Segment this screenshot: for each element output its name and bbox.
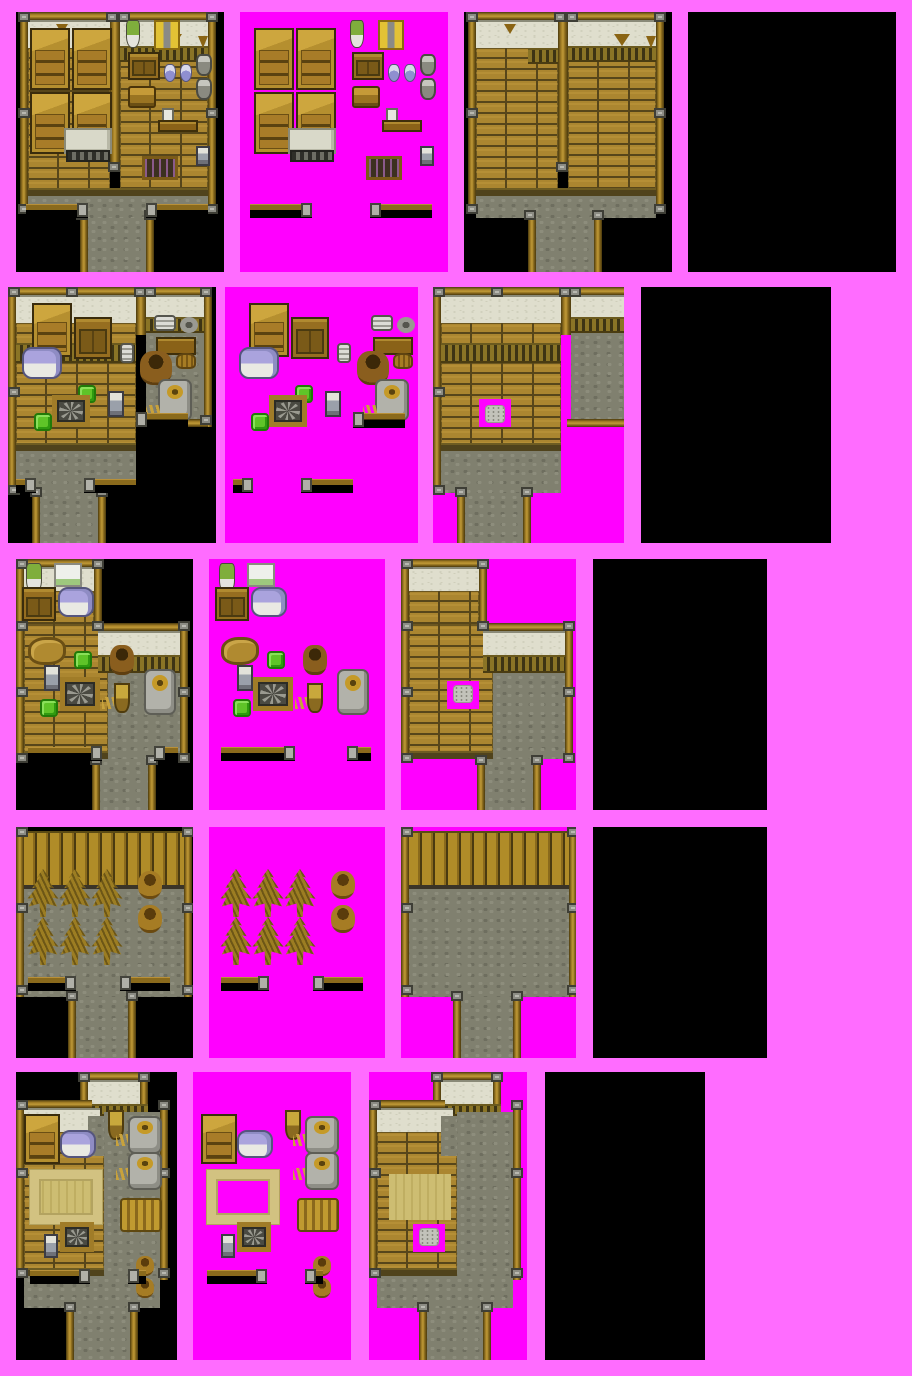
dresser (72, 28, 112, 90)
cauldron (303, 645, 327, 675)
ledge (301, 479, 353, 493)
chest (128, 86, 156, 108)
dresser (201, 1114, 237, 1164)
cap (567, 827, 576, 837)
exit-path (40, 493, 98, 543)
counter-rail (290, 150, 334, 162)
cushion (40, 699, 58, 717)
urn (196, 78, 212, 100)
cap (16, 1100, 28, 1110)
ledge (370, 204, 432, 218)
stove (337, 669, 369, 715)
wash-basin (239, 347, 279, 379)
cream-wall-left (441, 295, 561, 323)
cap (401, 903, 413, 913)
map-kitchen-interior-composite (8, 287, 216, 543)
cap (16, 827, 28, 837)
wooden-table (28, 637, 66, 665)
cap (433, 485, 445, 495)
cabinet (352, 52, 384, 80)
map-general-store-interior-composite (16, 12, 224, 272)
cap (417, 1302, 429, 1312)
hay-sticks (102, 697, 114, 709)
wall-base (16, 443, 136, 451)
ledge (120, 977, 170, 991)
cap (466, 204, 478, 214)
towel-rack (54, 563, 82, 587)
cap (8, 287, 20, 297)
alcove-cream-wall (441, 1080, 493, 1106)
cap (491, 287, 503, 297)
dead-tree (251, 917, 285, 965)
cap (106, 12, 118, 22)
cabinet (291, 317, 329, 359)
hay-sticks (293, 1168, 305, 1180)
cap (477, 621, 489, 631)
dead-tree (283, 917, 317, 965)
cap (182, 985, 193, 995)
cap (401, 621, 413, 631)
towel-rack (247, 563, 275, 587)
cap (16, 1268, 28, 1278)
cap (511, 1168, 523, 1178)
potion-bottle (404, 64, 416, 82)
wall-base (441, 443, 561, 451)
hay-sticks (116, 1168, 128, 1180)
cap (451, 991, 463, 1001)
cushion (34, 413, 52, 431)
palisade-wall (409, 831, 569, 889)
alcove-cream-wall (88, 1080, 140, 1106)
path-post (146, 212, 154, 272)
stone-floor (476, 196, 656, 218)
hanging-garment (378, 20, 404, 50)
candle-stand (307, 683, 323, 713)
stone-floor-right (571, 333, 624, 421)
basket (393, 353, 413, 369)
cap (433, 287, 445, 297)
wash-basin (22, 347, 62, 379)
cap (128, 1302, 140, 1312)
cap (466, 108, 478, 118)
flower-vase (126, 20, 140, 48)
stripe-band-right (483, 655, 569, 673)
hay-sticks (293, 1134, 305, 1146)
cushion (267, 651, 285, 669)
cap (401, 827, 413, 837)
cap (16, 985, 28, 995)
hearth (52, 395, 90, 427)
ledge (146, 204, 208, 218)
right-frame (94, 623, 188, 631)
ledge (221, 977, 269, 991)
cap (92, 559, 104, 569)
left-post (401, 559, 409, 761)
path-post (513, 995, 521, 1058)
ash-patch (485, 405, 505, 423)
cap (566, 12, 578, 22)
cap (16, 753, 28, 763)
hay-sticks (295, 697, 307, 709)
path-post (98, 489, 106, 543)
pot-lid (397, 317, 415, 333)
wash-basin (251, 587, 287, 617)
map-storehouse-with-dead-trees-objects-layer (209, 827, 385, 1058)
cushion (74, 651, 92, 669)
ledge (16, 479, 36, 493)
cap (477, 559, 489, 569)
cap (567, 985, 576, 995)
dead-tree (219, 917, 253, 965)
alcove-frame (435, 1072, 499, 1080)
hearth (269, 395, 307, 427)
desk (382, 120, 422, 132)
cap (16, 903, 28, 913)
right-room-edge (567, 419, 624, 427)
cap (521, 487, 533, 497)
desk (158, 120, 198, 132)
potion-bottle (164, 64, 176, 82)
urn (196, 54, 212, 76)
ledge (26, 204, 88, 218)
cabinet (74, 317, 112, 359)
cap (401, 753, 413, 763)
cap (654, 204, 666, 214)
stove (305, 1152, 339, 1190)
path-post (32, 489, 40, 543)
cap (66, 991, 78, 1001)
map-kitchen-interior-blank (641, 287, 831, 543)
cap (592, 210, 604, 220)
storage-pot (331, 905, 355, 933)
cushion (233, 699, 251, 717)
cap (78, 1072, 90, 1082)
left-post (369, 1100, 377, 1278)
cap (108, 162, 120, 172)
map-general-store-interior-objects-layer (240, 12, 448, 272)
wash-basin (60, 1130, 96, 1158)
path-post (523, 489, 531, 543)
cap (455, 487, 467, 497)
ledge (250, 204, 312, 218)
right-post (513, 1102, 521, 1280)
cap (200, 287, 212, 297)
path-post (419, 1306, 427, 1360)
loom-machine (44, 1234, 58, 1258)
dead-tree (219, 869, 253, 917)
cap (563, 753, 575, 763)
map-general-store-interior-base-layer (464, 12, 672, 272)
sprite-sheet (0, 0, 912, 1376)
chest (352, 86, 380, 108)
ledge (136, 413, 188, 428)
urn (420, 78, 436, 100)
map-bedroom-interior-blank (545, 1072, 705, 1360)
map-bedroom-interior-objects-layer (193, 1072, 351, 1360)
hay-fence (297, 1198, 339, 1232)
urn (420, 54, 436, 76)
ledge (313, 977, 363, 991)
cap (144, 287, 156, 297)
loom-machine (44, 665, 60, 691)
map-bedroom-interior-composite (16, 1072, 177, 1360)
cap (556, 162, 568, 172)
alcove-floor (409, 591, 479, 625)
path-post (528, 212, 536, 272)
cap (563, 621, 575, 631)
jar-shelf (196, 146, 210, 166)
stove (128, 1152, 162, 1190)
ledge (128, 1270, 146, 1284)
ledge (28, 977, 76, 991)
cap (433, 387, 445, 397)
ledge (84, 479, 136, 493)
cap (66, 287, 78, 297)
wine-rack (142, 156, 178, 180)
alcove-cream-wall (409, 567, 479, 591)
map-kitchen-interior-base-layer (433, 287, 624, 543)
cap (18, 108, 30, 118)
cap (431, 1072, 443, 1082)
cap (178, 621, 190, 631)
ledge (305, 1270, 323, 1284)
path-post (483, 1306, 491, 1360)
ledge (353, 413, 405, 428)
cap (178, 753, 190, 763)
ledge (233, 479, 253, 493)
dresser (30, 28, 70, 90)
cap (8, 387, 20, 397)
jar-shelf (420, 146, 434, 166)
cap (531, 755, 543, 765)
right-post (204, 287, 212, 427)
dresser (24, 1114, 60, 1164)
cap (158, 1268, 170, 1278)
alcove-frame (82, 1072, 146, 1080)
cushion (251, 413, 269, 431)
dresser (254, 28, 294, 90)
wall-base (28, 188, 208, 196)
exit-path (427, 1308, 483, 1360)
cap (491, 1072, 503, 1082)
stone-floor-right (493, 673, 569, 759)
hearth (60, 677, 100, 711)
path-post (128, 995, 136, 1058)
candle-stand (114, 683, 130, 713)
loom-machine (325, 391, 341, 417)
cream-wall-right (568, 20, 656, 46)
cap (569, 287, 581, 297)
cap (511, 991, 523, 1001)
wash-basin (58, 587, 94, 617)
stove (305, 1116, 339, 1154)
flower-vase (350, 20, 364, 48)
path-post (457, 489, 465, 543)
exit-path (88, 218, 146, 272)
potion-bottle (180, 64, 192, 82)
stripe-band-right (568, 46, 656, 62)
stove (144, 669, 176, 715)
plate-stack (154, 315, 176, 331)
stripe-band-left (441, 343, 561, 363)
cap (554, 12, 566, 22)
right-frame (479, 623, 573, 631)
stripe-band-left (528, 48, 558, 64)
exit-path (100, 759, 148, 810)
cap (369, 1268, 381, 1278)
path-post (80, 212, 88, 272)
exit-path (461, 997, 515, 1058)
cap (16, 1168, 28, 1178)
stripe-band-right (571, 317, 624, 333)
storage-pot (138, 871, 162, 899)
pot-lid (180, 317, 198, 333)
ledge (28, 747, 102, 761)
cap (18, 12, 30, 22)
cream-wall-left (476, 20, 558, 48)
path-post (130, 1306, 138, 1360)
dead-tree (251, 869, 285, 917)
storage-pot (331, 871, 355, 899)
map-kitchen-interior-objects-layer (225, 287, 418, 543)
cap (200, 415, 212, 425)
cap (126, 991, 138, 1001)
cap (369, 1100, 381, 1110)
cream-wall-right (483, 631, 569, 655)
cream-wall-right (571, 295, 624, 319)
ash-patch (419, 1228, 439, 1246)
cap (16, 621, 28, 631)
cap (182, 903, 193, 913)
cabinet (22, 587, 56, 621)
cap (511, 1100, 523, 1110)
plank-wall (441, 323, 561, 345)
loom-machine (108, 391, 124, 417)
cap (654, 12, 666, 22)
cabinet (128, 52, 160, 80)
top-frame (433, 287, 624, 295)
cap (401, 985, 413, 995)
ledge (154, 747, 178, 761)
stone-floor (409, 889, 569, 997)
dead-tree (283, 869, 317, 917)
stove (128, 1116, 162, 1154)
hay-sticks (116, 1134, 128, 1146)
cap (524, 210, 536, 220)
exit-path (76, 997, 130, 1058)
ledge (221, 747, 295, 761)
hay-fence (120, 1198, 162, 1232)
exit-path (465, 493, 523, 543)
wall-base (377, 1268, 457, 1276)
top-frame (8, 287, 208, 295)
cap (654, 108, 666, 118)
path-post (68, 995, 76, 1058)
counter-rail (66, 150, 110, 162)
wine-rack (366, 156, 402, 180)
tatami-mat-border (207, 1170, 279, 1224)
ledge (207, 1270, 267, 1284)
stone-corridor (441, 1116, 457, 1156)
hearth (60, 1222, 94, 1252)
hanging-garment (154, 20, 180, 50)
dish-stack (337, 343, 351, 363)
hearth (253, 677, 293, 711)
cap (511, 1268, 523, 1278)
alcove-frame (401, 559, 487, 567)
map-cottage-interior-objects-layer (209, 559, 385, 810)
potion-bottle (388, 64, 400, 82)
cap (563, 687, 575, 697)
cap (92, 621, 104, 631)
storage-pot (138, 905, 162, 933)
cap (64, 1302, 76, 1312)
tatami-mat-fill (389, 1174, 451, 1220)
map-cottage-interior-blank (593, 559, 767, 810)
plank-wall-right (568, 46, 656, 194)
map-storehouse-with-dead-trees-blank (593, 827, 767, 1058)
map-storehouse-with-dead-trees-composite (16, 827, 193, 1058)
divider-post (558, 12, 568, 170)
path-post (66, 1306, 74, 1360)
exit-path (536, 218, 594, 272)
cap (475, 755, 487, 765)
cap (206, 12, 218, 22)
basket (176, 353, 196, 369)
cabinet (215, 587, 249, 621)
loom-machine (221, 1234, 235, 1258)
wash-basin (237, 1130, 273, 1158)
exit-path (485, 759, 533, 810)
cap (16, 687, 28, 697)
plank-wall-left (476, 48, 558, 194)
map-general-store-interior-blank (688, 12, 896, 272)
hearth (237, 1222, 271, 1252)
cap (369, 1168, 381, 1178)
wall-base (476, 188, 656, 196)
map-bedroom-interior-base-layer (369, 1072, 527, 1360)
map-cottage-interior-base-layer (401, 559, 576, 810)
map-cottage-interior-composite (16, 559, 193, 810)
map-storehouse-with-dead-trees-base-layer (401, 827, 576, 1058)
cap (182, 827, 193, 837)
ledge (347, 747, 371, 761)
dish-stack (120, 343, 134, 363)
cap (401, 559, 413, 569)
path-post (453, 995, 461, 1058)
loom-machine (237, 665, 253, 691)
wooden-table (221, 637, 259, 665)
left-post (16, 1100, 24, 1278)
cap (178, 687, 190, 697)
cap (481, 1302, 493, 1312)
cap (401, 687, 413, 697)
tatami-mat-border (30, 1170, 102, 1224)
cap (158, 1100, 170, 1110)
plate-stack (371, 315, 393, 331)
exit-path (74, 1308, 130, 1360)
cap (206, 108, 218, 118)
cap (138, 1072, 150, 1082)
ledge (30, 1270, 90, 1284)
cauldron (110, 645, 134, 675)
cap (466, 12, 478, 22)
cap (567, 903, 576, 913)
ash-patch (453, 685, 473, 703)
dresser (296, 28, 336, 90)
path-post (594, 212, 602, 272)
